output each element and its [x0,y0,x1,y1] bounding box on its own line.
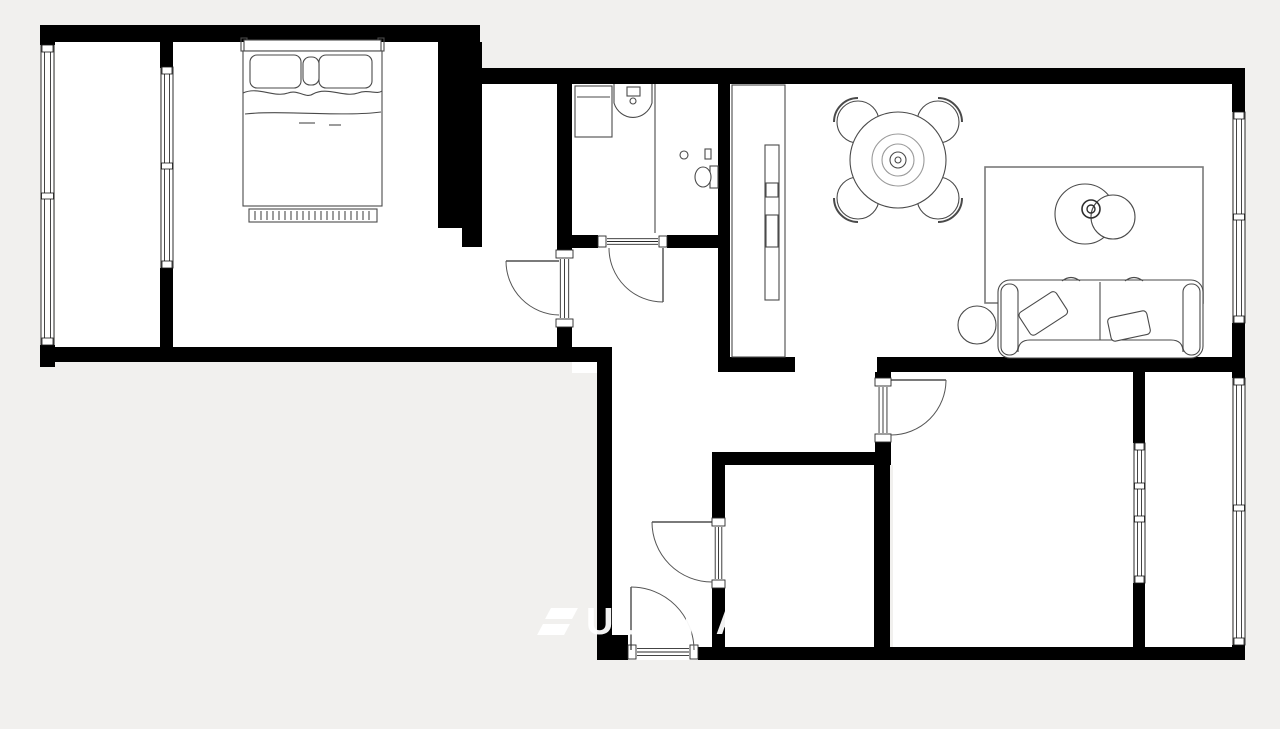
balcony-floor [55,42,160,347]
bedroom-alcove-floor [474,84,560,347]
balcony-partition-bottom [160,268,173,347]
top-right-corner [1232,68,1245,112]
storage-left-wall-upper [712,465,725,520]
hall-lower-floor [612,362,712,648]
right-wall-mid-block [1232,323,1245,378]
bathroom-bottom-wall-left [572,235,598,248]
living-room-window [1233,112,1245,323]
balcony-partition-top [160,28,173,68]
loggia-partition-top [1133,372,1145,443]
bathroom-left-wall-lower [557,327,572,349]
washing-machine [575,86,612,137]
sofa [998,278,1203,359]
dining-set [834,98,962,222]
hall-left-wall [597,362,612,642]
bottom-wall [698,647,1245,660]
living-bottom-wall-right [877,357,1232,372]
bedroom-pillar [438,42,482,228]
loggia-partition-bottom [1133,583,1145,647]
bedroom-pillar-notch [462,228,482,247]
bathroom-sink [614,84,652,117]
bedroom-balcony-partition-window [161,67,173,268]
loggia-exterior-window [1233,378,1245,645]
double-bed [241,38,384,222]
bedroom-bottom-wall [40,347,612,362]
wardrobe [732,85,785,357]
storage-room-floor [725,465,874,648]
left-wall-top-corner [40,25,55,45]
side-table [958,306,996,344]
top-right-wall [480,68,1232,84]
living-bottom-wall-left [730,357,795,372]
storage-left-wall-lower [712,586,725,650]
bathroom-right-wall [718,84,730,372]
bathroom-bottom-wall-right [667,235,718,248]
storage-right-wall [874,465,890,650]
corridor-floor [712,372,893,465]
bedroom2-loggia-partition-window [1134,443,1145,583]
bathroom-left-wall-upper [557,84,572,250]
storage-top-wall [712,452,890,465]
toilet [695,166,718,188]
bedroom2-loggia-floor [893,372,1232,648]
balcony-exterior-window [41,45,54,345]
floor-plan-page: UUBRA [0,0,1280,729]
hall-bottom-step [597,635,628,660]
floor-plan-svg [0,0,1280,729]
